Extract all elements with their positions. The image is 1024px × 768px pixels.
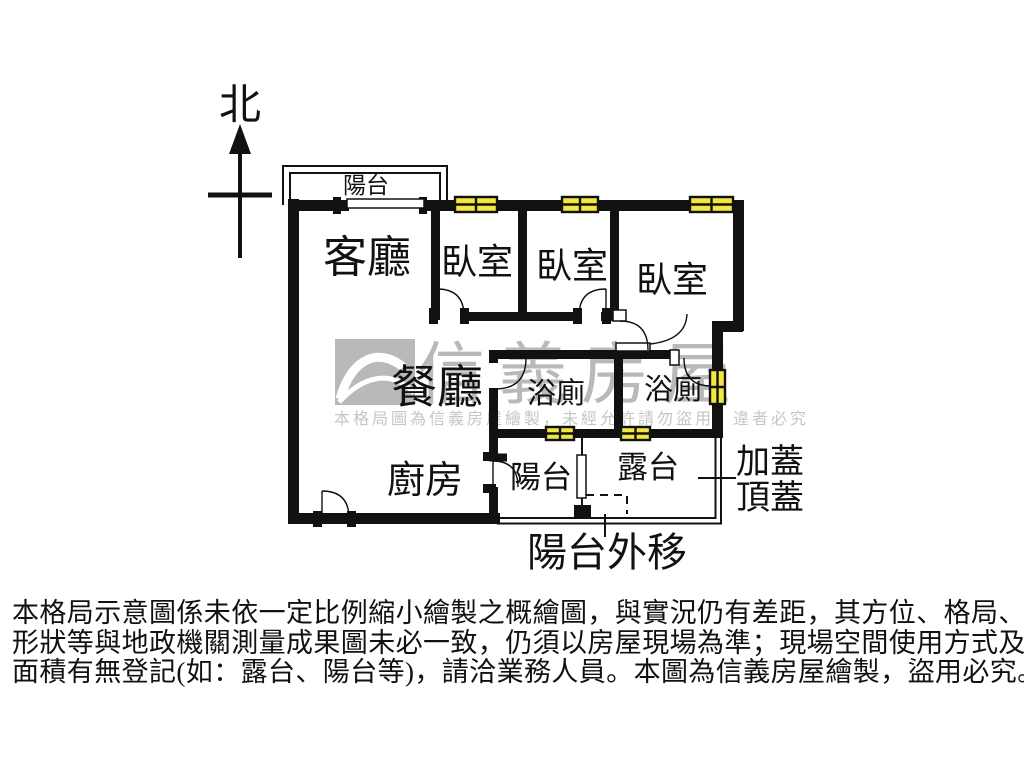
north-indicator: 北 xyxy=(208,83,272,258)
room-label-roof-cover-2: 頂蓋 xyxy=(736,480,804,517)
room-label-balcony-bottom: 陽台 xyxy=(510,460,572,495)
bedroom2-door-arc xyxy=(579,289,606,316)
north-label: 北 xyxy=(219,83,261,129)
room-label-dining: 餐廳 xyxy=(391,362,483,413)
room-label-bedroom3: 臥室 xyxy=(636,260,708,300)
window xyxy=(710,370,725,404)
room-label-kitchen: 廚房 xyxy=(387,460,463,502)
disclaimer-line-3: 面積有無登記(如：露台、陽台等)，請洽業務人員。本圖為信義房屋繪製，盜用必究。 xyxy=(12,657,1024,687)
bath2-door-jamb xyxy=(670,350,679,365)
disclaimer-line-2: 形狀等與地政機關測量成果圖未必一致，仍須以房屋現場為準；現場空間使用方式及 xyxy=(12,628,1024,658)
room-label-balcony-top: 陽台 xyxy=(343,173,389,198)
room-label-bedroom1: 臥室 xyxy=(441,242,513,282)
window xyxy=(455,197,497,212)
room-label-terrace: 露台 xyxy=(617,450,679,485)
room-label-bedroom2: 臥室 xyxy=(536,246,608,286)
living-sliding-door xyxy=(347,199,424,208)
balcony-sliding-panel xyxy=(577,455,586,498)
balcony-extension-dashed-line xyxy=(586,495,627,514)
disclaimer-line-1: 本格局示意圖係未依一定比例縮小繪製之概繪圖，與實況仍有差距，其方位、格局、 xyxy=(12,598,1024,628)
room-label-roof-cover-1: 加蓋 xyxy=(736,444,804,481)
window xyxy=(621,427,650,440)
room-label-living: 客廳 xyxy=(323,233,411,282)
window xyxy=(690,197,733,212)
bedroom3-door-leaf xyxy=(616,343,650,351)
room-label-bath1: 浴廁 xyxy=(527,377,585,410)
divider-end-block xyxy=(574,505,591,517)
floor-plan-page: { "compass": { "label": "北" }, "rooms": … xyxy=(0,0,1024,768)
room-label-bath2: 浴廁 xyxy=(644,373,702,406)
room-label-balcony-extension: 陽台外移 xyxy=(527,530,687,575)
bedroom1-door-arc xyxy=(437,289,464,316)
corridor-door-leaf xyxy=(613,310,626,321)
window xyxy=(562,197,598,212)
window xyxy=(546,427,574,440)
